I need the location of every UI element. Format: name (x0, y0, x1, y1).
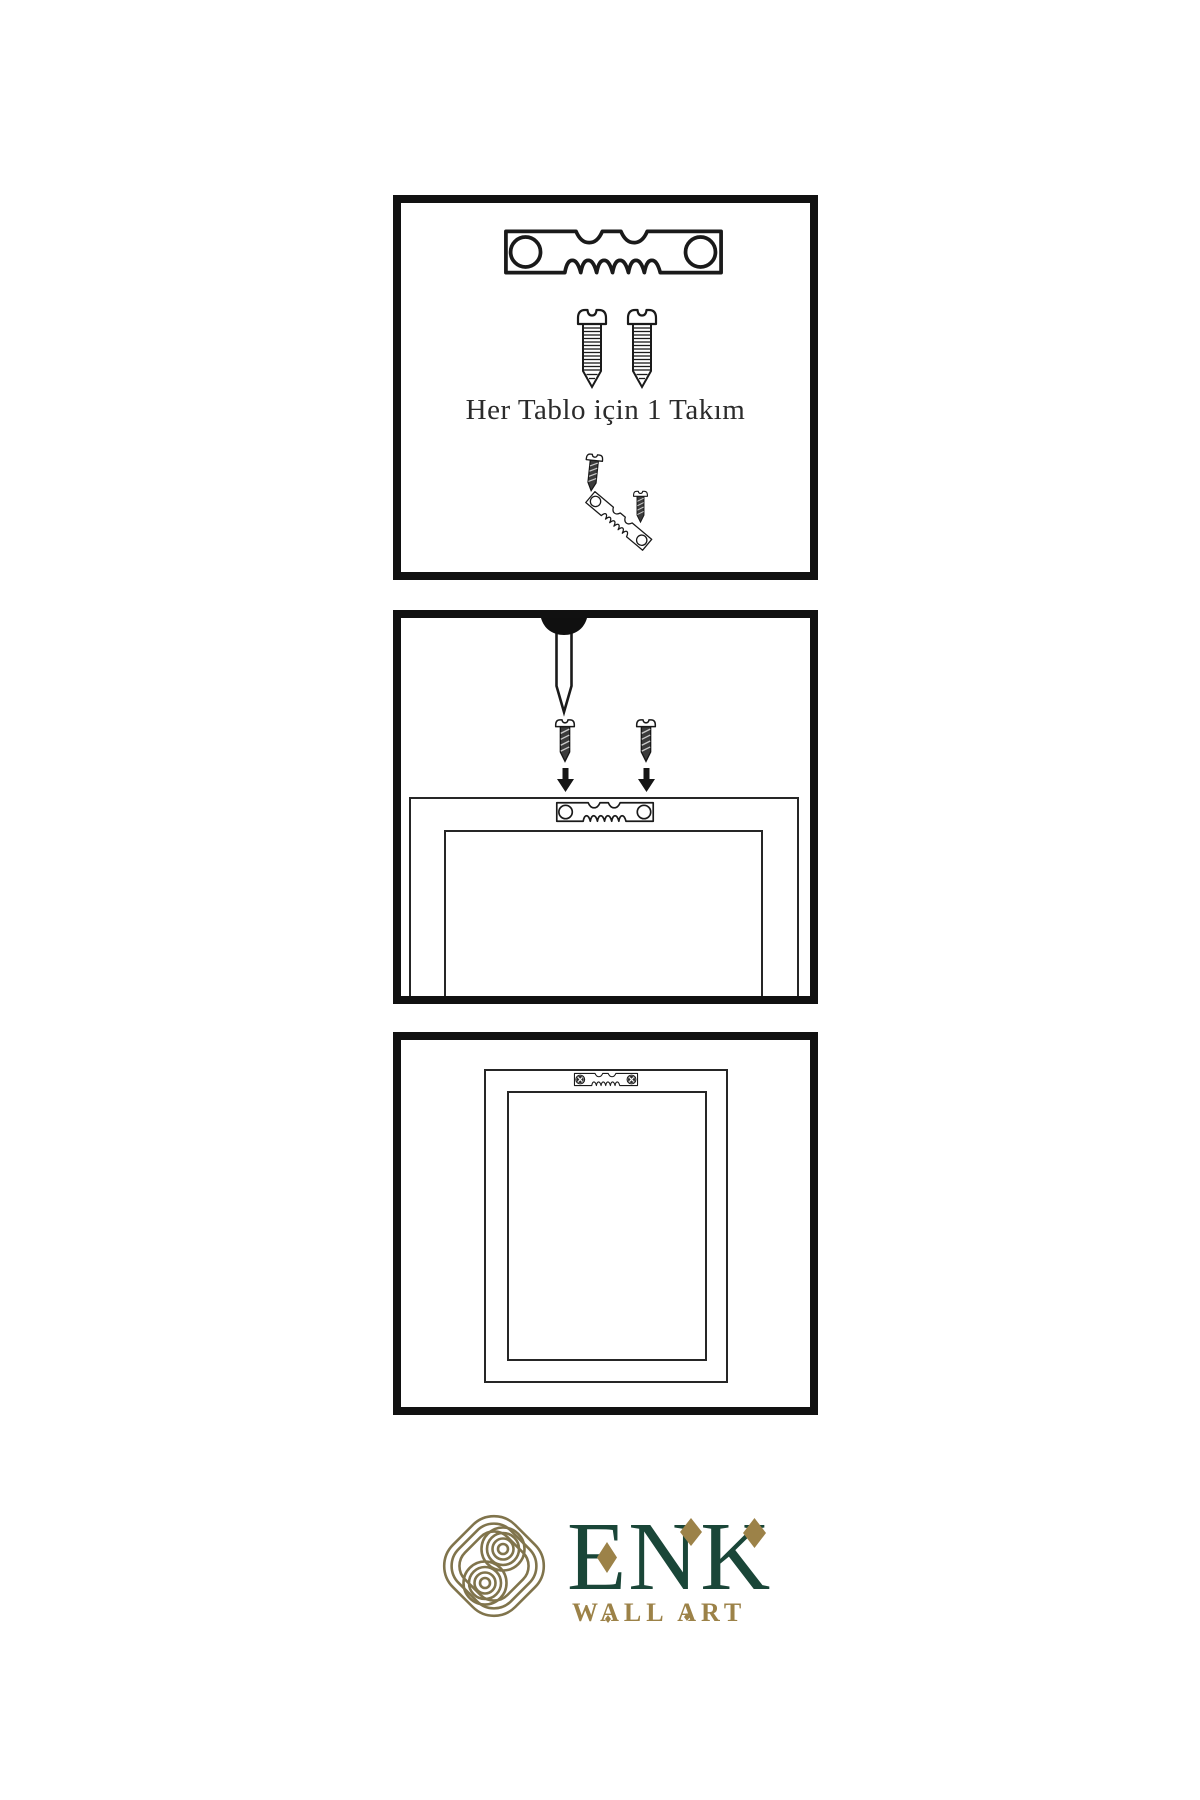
panel-install-hanger (393, 610, 818, 1004)
frame-back-inner-outline (444, 830, 763, 996)
panel-hang-frame (393, 1032, 818, 1415)
dark-screw-icon (581, 452, 605, 494)
picture-frame-inner-outline (507, 1091, 707, 1361)
brand-text: ENK WALL ART (567, 1509, 772, 1628)
screw-icon (625, 307, 659, 391)
sawtooth-hanger-mounted-icon (573, 1071, 639, 1088)
interlocking-knot-icon (437, 1503, 551, 1629)
dark-screw-icon (635, 718, 657, 764)
sawtooth-hanger-icon (497, 223, 730, 281)
dark-screw-icon (554, 718, 576, 764)
nail-icon (540, 618, 588, 722)
kit-caption: Her Tablo için 1 Takım (401, 394, 810, 427)
arrow-down-icon (638, 768, 655, 792)
screw-icon (575, 307, 609, 391)
sawtooth-hanger-icon (553, 799, 657, 825)
instruction-sheet: Her Tablo için 1 Takım ENK WALL ART (0, 0, 1200, 1800)
brand-tagline: WALL ART (567, 1598, 772, 1628)
dark-screw-icon (632, 490, 649, 524)
brand-logo: ENK WALL ART (437, 1509, 772, 1629)
arrow-down-icon (557, 768, 574, 792)
panel-hardware-kit: Her Tablo için 1 Takım (393, 195, 818, 580)
